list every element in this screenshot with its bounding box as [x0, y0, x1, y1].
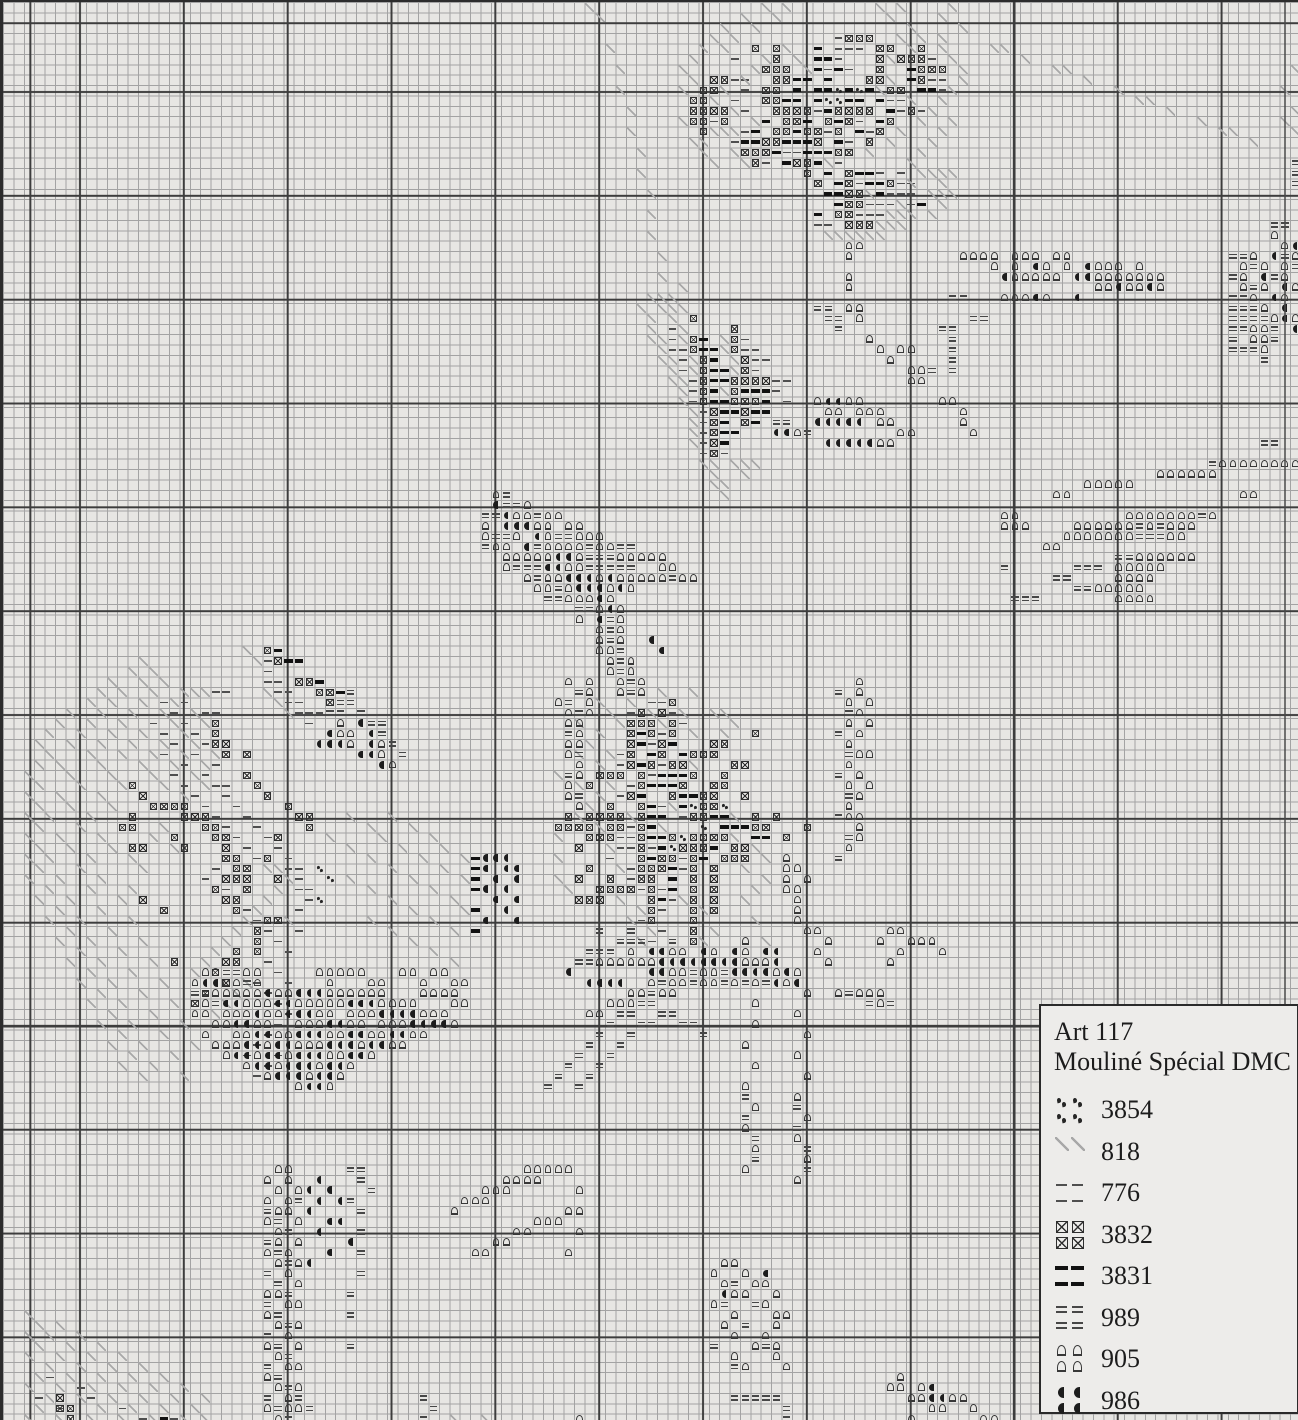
stitch-3854: [833, 95, 843, 105]
stitch-905: [1114, 583, 1124, 593]
stitch-989: [615, 666, 625, 676]
stitch-3832: [647, 915, 657, 925]
stitch-905: [356, 967, 366, 977]
stitch-905: [875, 988, 885, 998]
stitch-3832: [709, 905, 719, 915]
stitch-905: [647, 957, 657, 967]
stitch-905: [1176, 521, 1186, 531]
legend: Art 117 Mouliné Spécial DMC 385481877638…: [1039, 1004, 1298, 1414]
stitch-3831: [782, 137, 792, 147]
stitch-905: [626, 988, 636, 998]
stitch-989: [813, 303, 823, 313]
stitch-818: [65, 926, 75, 936]
stitch-818: [138, 936, 148, 946]
stitch-989: [564, 697, 574, 707]
stitch-905: [1269, 313, 1279, 323]
stitch-905: [294, 1362, 304, 1372]
stitch-986: [335, 1061, 345, 1071]
legend-title: Art 117 Mouliné Spécial DMC: [1054, 1017, 1291, 1077]
stitch-3832: [325, 687, 335, 697]
stitch-905: [916, 1383, 926, 1393]
stitch-986: [491, 895, 501, 905]
stitch-905: [283, 1248, 293, 1258]
stitch-905: [854, 988, 864, 998]
stitch-905: [844, 843, 854, 853]
stitch-905: [283, 1300, 293, 1310]
stitch-905: [771, 1351, 781, 1361]
stitch-905: [553, 542, 563, 552]
stitch-905: [709, 967, 719, 977]
stitch-905: [346, 739, 356, 749]
stitch-3854: [823, 95, 833, 105]
stitch-905: [522, 573, 532, 583]
stitch-818: [55, 1351, 65, 1361]
stitch-776: [678, 365, 688, 375]
stitch-905: [366, 1009, 376, 1019]
stitch-818: [148, 1061, 158, 1071]
stitch-3831: [657, 781, 667, 791]
stitch-3831: [636, 729, 646, 739]
stitch-818: [55, 1414, 65, 1420]
stitch-3832: [626, 884, 636, 894]
arch-icon: [1054, 1344, 1086, 1375]
stitch-3831: [761, 832, 771, 842]
stitch-3832: [771, 85, 781, 95]
stitch-818: [906, 44, 916, 54]
stitch-905: [1020, 272, 1030, 282]
stitch-3831: [678, 770, 688, 780]
stitch-818: [128, 1019, 138, 1029]
stitch-3831: [750, 407, 760, 417]
stitch-986: [584, 583, 594, 593]
stitch-818: [86, 967, 96, 977]
stitch-986: [325, 1185, 335, 1195]
double-dots-icon: [1054, 1095, 1069, 1110]
stitch-905: [615, 573, 625, 583]
stitch-3832: [730, 334, 740, 344]
stitch-818: [408, 874, 418, 884]
stitch-776: [283, 947, 293, 957]
stitch-818: [667, 293, 677, 303]
stitch-986: [325, 729, 335, 739]
stitch-905: [615, 635, 625, 645]
stitch-3832: [730, 843, 740, 853]
stitch-905: [283, 1331, 293, 1341]
stitch-776: [854, 44, 864, 54]
stitch-986: [844, 417, 854, 427]
stitch-818: [169, 1050, 179, 1060]
stitch-989: [366, 1185, 376, 1195]
stitch-905: [989, 1414, 999, 1420]
stitch-986: [1083, 262, 1093, 272]
stitch-989: [678, 1019, 688, 1029]
stitch-776: [896, 168, 906, 178]
stitch-989: [782, 1403, 792, 1413]
stitch-986: [501, 864, 511, 874]
stitch-989: [1269, 334, 1279, 344]
stitch-3832: [854, 189, 864, 199]
stitch-989: [1269, 438, 1279, 448]
stitch-905: [595, 573, 605, 583]
stitch-986: [688, 957, 698, 967]
stitch-3831: [709, 376, 719, 386]
stitch-776: [273, 687, 283, 697]
stitch-989: [698, 1030, 708, 1040]
stitch-905: [1134, 594, 1144, 604]
stitch-3832: [698, 832, 708, 842]
stitch-818: [242, 915, 252, 925]
stitch-905: [574, 760, 584, 770]
stitch-989: [865, 998, 875, 1008]
legend-entry-818: 818: [1054, 1131, 1291, 1173]
stitch-818: [615, 895, 625, 905]
stitch-818: [45, 884, 55, 894]
stitch-905: [1124, 282, 1134, 292]
stitch-3831: [750, 417, 760, 427]
stitch-776: [283, 687, 293, 697]
stitch-3831: [844, 95, 854, 105]
stitch-905: [865, 718, 875, 728]
stitch-776: [937, 75, 947, 85]
stitch-818: [647, 230, 657, 240]
stitch-989: [833, 812, 843, 822]
stitch-986: [283, 1040, 293, 1050]
stitch-989: [377, 729, 387, 739]
stitch-3831: [657, 812, 667, 822]
stitch-986: [1269, 293, 1279, 303]
stitch-986: [252, 1061, 262, 1071]
stitch-989: [626, 936, 636, 946]
stitch-905: [1166, 511, 1176, 521]
stitch-3832: [719, 75, 729, 85]
stitch-818: [927, 137, 937, 147]
stitch-818: [595, 791, 605, 801]
stitch-905: [346, 988, 356, 998]
stitch-905: [190, 1009, 200, 1019]
stitch-818: [584, 801, 594, 811]
stitch-3831: [823, 106, 833, 116]
stitch-3832: [688, 313, 698, 323]
stitch-905: [263, 1403, 273, 1413]
stitch-905: [273, 1258, 283, 1268]
stitch-905: [325, 998, 335, 1008]
stitch-818: [667, 376, 677, 386]
stitch-776: [906, 199, 916, 209]
stitch-986: [501, 511, 511, 521]
stitch-905: [418, 1030, 428, 1040]
stitch-3831: [813, 158, 823, 168]
stitch-986: [512, 874, 522, 884]
bold-dash-icon: [1054, 1277, 1069, 1292]
stitch-818: [408, 936, 418, 946]
stitch-818: [948, 168, 958, 178]
stitch-818: [96, 708, 106, 718]
stitch-818: [190, 1040, 200, 1050]
stitch-905: [242, 988, 252, 998]
stitch-986: [314, 988, 324, 998]
stitch-3832: [605, 770, 615, 780]
stitch-776: [615, 760, 625, 770]
stitch-905: [242, 1061, 252, 1071]
stitch-818: [107, 677, 117, 687]
stitch-905: [1145, 563, 1155, 573]
stitch-989: [833, 313, 843, 323]
stitch-905: [698, 967, 708, 977]
stitch-818: [782, 44, 792, 54]
stitch-3832: [740, 407, 750, 417]
stitch-776: [273, 967, 283, 977]
stitch-3832: [231, 864, 241, 874]
stitch-905: [325, 1050, 335, 1060]
stitch-818: [896, 210, 906, 220]
stitch-818: [429, 832, 439, 842]
stitch-3832: [221, 739, 231, 749]
stitch-818: [948, 54, 958, 64]
stitch-818: [626, 812, 636, 822]
stitch-3832: [782, 832, 792, 842]
cross-stitch-chart: Art 117 Mouliné Spécial DMC 385481877638…: [0, 0, 1298, 1420]
stitch-3832: [667, 729, 677, 739]
stitch-3832: [304, 822, 314, 832]
stitch-905: [574, 718, 584, 728]
stitch-818: [574, 781, 584, 791]
stitch-986: [771, 428, 781, 438]
double-dots-icon: [1070, 1095, 1085, 1110]
stitch-986: [335, 739, 345, 749]
stitch-776: [916, 106, 926, 116]
stitch-905: [1051, 490, 1061, 500]
stitch-905: [356, 1009, 366, 1019]
stitch-905: [916, 376, 926, 386]
stitch-818: [740, 459, 750, 469]
stitch-3832: [771, 812, 781, 822]
stitch-905: [906, 1393, 916, 1403]
stitch-989: [1083, 583, 1093, 593]
stitch-905: [263, 1372, 273, 1382]
stitch-986: [1031, 262, 1041, 272]
stitch-986: [512, 915, 522, 925]
stitch-818: [678, 396, 688, 406]
stitch-989: [356, 1227, 366, 1237]
stitch-989: [356, 1206, 366, 1216]
stitch-776: [885, 199, 895, 209]
stitch-989: [356, 1175, 366, 1185]
stitch-989: [782, 417, 792, 427]
stitch-3832: [698, 749, 708, 759]
stitch-986: [304, 1185, 314, 1195]
stitch-776: [242, 843, 252, 853]
stitch-3831: [823, 168, 833, 178]
stitch-818: [387, 895, 397, 905]
stitch-776: [698, 407, 708, 417]
stitch-776: [854, 178, 864, 188]
double-dash-icon: [1070, 1302, 1085, 1317]
stitch-776: [688, 386, 698, 396]
stitch-905: [314, 1019, 324, 1029]
stitch-989: [979, 313, 989, 323]
stitch-776: [844, 64, 854, 74]
stitch-905: [283, 1175, 293, 1185]
stitch-3832: [273, 915, 283, 925]
stitch-905: [615, 604, 625, 614]
stitch-3832: [750, 729, 760, 739]
stitch-818: [96, 760, 106, 770]
stitch-3832: [761, 147, 771, 157]
stitch-818: [647, 708, 657, 718]
stitch-818: [761, 874, 771, 884]
stitch-3831: [657, 895, 667, 905]
stitch-818: [55, 791, 65, 801]
stitch-905: [636, 677, 646, 687]
stitch-776: [896, 106, 906, 116]
stitch-818: [76, 978, 86, 988]
stitch-3832: [667, 853, 677, 863]
stitch-905: [1176, 511, 1186, 521]
stitch-3832: [698, 127, 708, 137]
stitch-818: [65, 957, 75, 967]
stitch-989: [1238, 345, 1248, 355]
stitch-989: [605, 625, 615, 635]
stitch-986: [512, 864, 522, 874]
stitch-3832: [730, 386, 740, 396]
stitch-818: [128, 708, 138, 718]
stitch-818: [34, 781, 44, 791]
stitch-986: [491, 853, 501, 863]
stitch-818: [45, 729, 55, 739]
empty-cell: [1054, 1152, 1069, 1167]
stitch-905: [387, 1019, 397, 1029]
stitch-905: [782, 1362, 792, 1372]
stitch-905: [750, 998, 760, 1008]
stitch-3832: [667, 718, 677, 728]
stitch-905: [595, 646, 605, 656]
stitch-905: [1134, 573, 1144, 583]
stitch-3831: [865, 168, 875, 178]
stitch-989: [615, 656, 625, 666]
stitch-3832: [615, 822, 625, 832]
diagonal-line-icon: [1070, 1136, 1085, 1151]
stitch-905: [823, 957, 833, 967]
stitch-3832: [771, 64, 781, 74]
stitch-905: [512, 511, 522, 521]
stitch-989: [761, 1341, 771, 1351]
stitch-986: [397, 1009, 407, 1019]
stitch-3832: [750, 376, 760, 386]
stitch-776: [304, 895, 314, 905]
stitch-905: [1124, 511, 1134, 521]
stitch-3832: [750, 396, 760, 406]
stitch-3832: [854, 220, 864, 230]
stitch-905: [626, 656, 636, 666]
stitch-905: [480, 521, 490, 531]
stitch-776: [647, 770, 657, 780]
stitch-905: [1145, 573, 1155, 583]
stitch-776: [200, 874, 210, 884]
stitch-3832: [190, 998, 200, 1008]
stitch-989: [740, 1113, 750, 1123]
stitch-905: [1103, 282, 1113, 292]
stitch-989: [429, 1403, 439, 1413]
stitch-905: [252, 988, 262, 998]
stitch-818: [128, 1372, 138, 1382]
stitch-818: [480, 1414, 490, 1420]
stitch-989: [1228, 272, 1238, 282]
stitch-905: [802, 1113, 812, 1123]
stitch-3831: [678, 801, 688, 811]
stitch-776: [304, 884, 314, 894]
stitch-989: [1072, 563, 1082, 573]
stitch-905: [335, 988, 345, 998]
stitch-905: [1249, 334, 1259, 344]
stitch-905: [294, 1019, 304, 1029]
stitch-818: [24, 1310, 34, 1320]
stitch-986: [356, 718, 366, 728]
half-moon-icon: [1054, 1385, 1086, 1416]
stitch-3832: [875, 44, 885, 54]
stitch-818: [709, 479, 719, 489]
stitch-986: [719, 1289, 729, 1299]
stitch-989: [1124, 552, 1134, 562]
stitch-776: [740, 106, 750, 116]
stitch-3832: [719, 116, 729, 126]
stitch-905: [1041, 542, 1051, 552]
stitch-776: [200, 770, 210, 780]
stitch-986: [346, 1030, 356, 1040]
stitch-989: [1259, 313, 1269, 323]
stitch-989: [283, 1351, 293, 1361]
stitch-989: [927, 365, 937, 375]
stitch-905: [906, 376, 916, 386]
stitch-818: [927, 189, 937, 199]
stitch-3832: [730, 345, 740, 355]
stitch-905: [273, 1351, 283, 1361]
stitch-3832: [844, 147, 854, 157]
stitch-905: [854, 677, 864, 687]
stitch-776: [678, 864, 688, 874]
stitch-905: [958, 407, 968, 417]
stitch-989: [626, 563, 636, 573]
stitch-818: [750, 64, 760, 74]
stitch-818: [730, 365, 740, 375]
stitch-776: [86, 1393, 96, 1403]
stitch-818: [761, 936, 771, 946]
stitch-3831: [750, 127, 760, 137]
stitch-905: [408, 967, 418, 977]
stitch-905: [1290, 282, 1298, 292]
stitch-989: [605, 1019, 615, 1029]
stitch-905: [979, 1414, 989, 1420]
stitch-905: [896, 428, 906, 438]
stitch-905: [865, 407, 875, 417]
half-moon-icon: [1070, 1385, 1085, 1400]
stitch-3832: [740, 843, 750, 853]
legend-title-line1: Art 117: [1054, 1017, 1291, 1047]
stitch-905: [346, 1019, 356, 1029]
stitch-905: [595, 1009, 605, 1019]
stitch-986: [263, 1061, 273, 1071]
stitch-905: [1114, 521, 1124, 531]
stitch-818: [750, 116, 760, 126]
stitch-776: [771, 386, 781, 396]
stitch-3832: [231, 947, 241, 957]
stitch-818: [252, 905, 262, 915]
stitch-3831: [740, 386, 750, 396]
stitch-905: [1103, 521, 1113, 531]
stitch-905: [564, 1206, 574, 1216]
stitch-818: [346, 812, 356, 822]
stitch-905: [564, 563, 574, 573]
stitch-986: [512, 521, 522, 531]
